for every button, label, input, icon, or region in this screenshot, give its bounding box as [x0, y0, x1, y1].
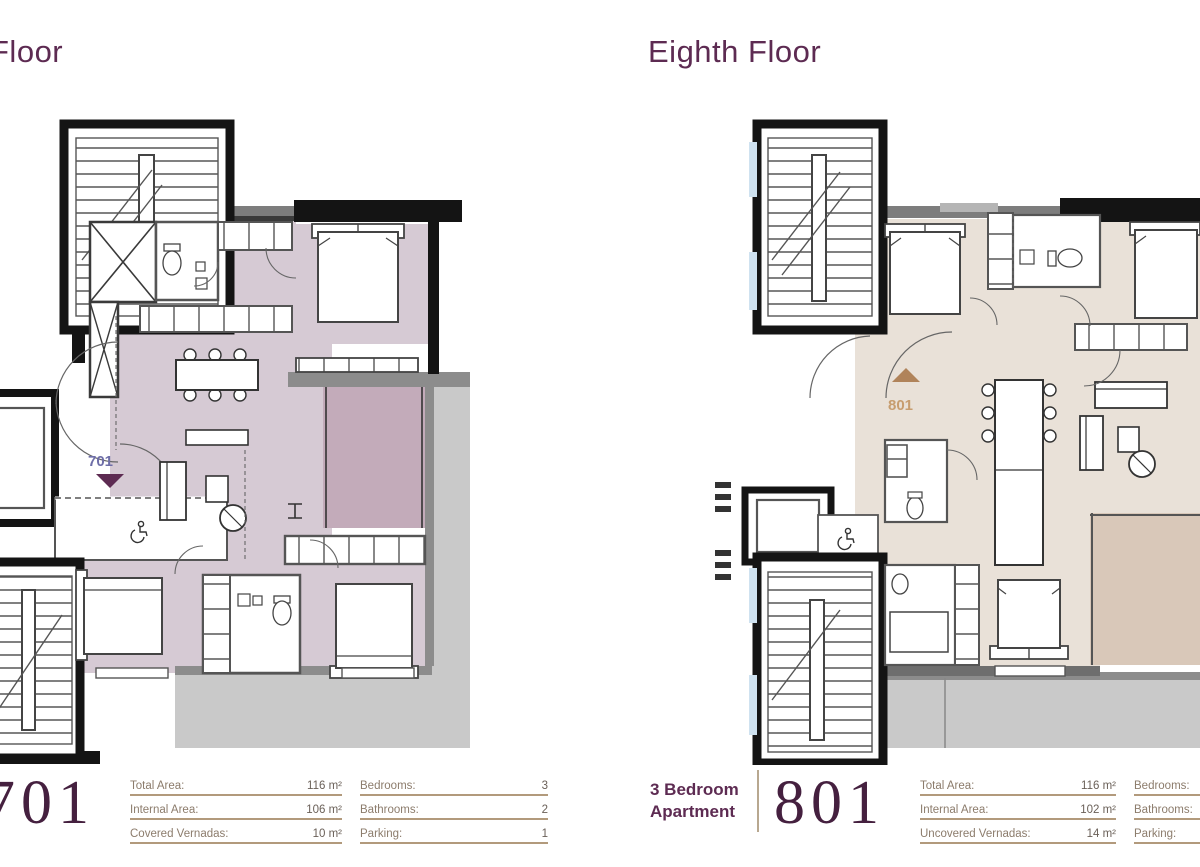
spec-row: Total Area:116 m²: [920, 774, 1116, 796]
spec-label: Bathrooms:: [1134, 804, 1193, 816]
footer-divider: [757, 770, 759, 832]
floor-plan-801-drawing: 801: [640, 110, 1200, 765]
bed-top-right-801: [1130, 222, 1200, 318]
brochure-page: Floor: [0, 0, 1200, 867]
spec-value: 3: [542, 780, 548, 792]
spec-row: Covered Vernadas:10 m²: [130, 822, 342, 844]
unit-marker-701-label: 701: [88, 453, 113, 470]
bed-top-left-801: [885, 224, 965, 314]
bathroom-bottom-801: [885, 565, 979, 665]
spec-label: Internal Area:: [920, 804, 988, 816]
spec-row: Bathrooms:2: [360, 798, 548, 820]
bathroom-bottom-701: [203, 575, 300, 673]
spec-row: Parking:: [1134, 822, 1200, 844]
spec-label: Bathrooms:: [360, 804, 419, 816]
spec-table-801: Total Area:116 m² Internal Area:102 m² U…: [920, 774, 1200, 846]
bathroom-top-701: [156, 222, 218, 300]
spec-row: Internal Area:106 m²: [130, 798, 342, 820]
bathroom-top-801: [988, 213, 1100, 289]
spec-value: 10 m²: [313, 828, 342, 840]
dining-set-701: [176, 349, 258, 401]
floor-plan-701-drawing: 701: [0, 110, 560, 765]
spec-row: Uncovered Vernadas:14 m²: [920, 822, 1116, 844]
spec-row: Internal Area:102 m²: [920, 798, 1116, 820]
spec-value: 106 m²: [306, 804, 342, 816]
stairwell-top-801: [749, 124, 883, 330]
accessible-lobby-701: [55, 498, 227, 560]
apartment-type-line1: 3 Bedroom: [650, 779, 739, 801]
terrace-801: [882, 672, 1200, 748]
spec-label: Parking:: [360, 828, 402, 840]
spec-value: 2: [542, 804, 548, 816]
bed-bottom-right: [330, 584, 418, 678]
spec-label: Covered Vernadas:: [130, 828, 228, 840]
apartment-type-801: 3 Bedroom Apartment: [650, 779, 739, 823]
spec-label: Internal Area:: [130, 804, 198, 816]
spec-label: Total Area:: [920, 780, 974, 792]
bathroom-mid-801: [885, 440, 947, 522]
spec-row: Total Area:116 m²: [130, 774, 342, 796]
spec-row: Parking:1: [360, 822, 548, 844]
spec-col-areas-701: Total Area:116 m² Internal Area:106 m² C…: [130, 774, 342, 846]
unit-marker-801-label: 801: [888, 397, 913, 414]
spec-label: Total Area:: [130, 780, 184, 792]
covered-veranda-701: [323, 387, 425, 528]
stairwell-bottom-701: [0, 562, 80, 758]
spec-value: 1: [542, 828, 548, 840]
spec-value: 116 m²: [1081, 780, 1116, 792]
spec-col-counts-701: Bedrooms:3 Bathrooms:2 Parking:1: [360, 774, 548, 846]
spec-value: 102 m²: [1080, 804, 1116, 816]
stairwell-bottom-801: [749, 557, 883, 763]
spec-value: 116 m²: [307, 780, 342, 792]
accessible-lobby-801: [818, 515, 878, 555]
spec-label: Bedrooms:: [1134, 780, 1190, 792]
spec-table-701: Total Area:116 m² Internal Area:106 m² C…: [130, 774, 548, 846]
spec-label: Bedrooms:: [360, 780, 416, 792]
big-unit-number-701: 701: [0, 768, 95, 839]
spec-row: Bedrooms:: [1134, 774, 1200, 796]
spec-col-areas-801: Total Area:116 m² Internal Area:102 m² U…: [920, 774, 1116, 846]
apartment-type-line2: Apartment: [650, 801, 739, 823]
closet-row-801: [1075, 324, 1187, 350]
spec-value: 14 m²: [1087, 828, 1116, 840]
bed-bottom-left: [76, 570, 162, 660]
right-floor-title: Eighth Floor: [648, 34, 821, 70]
spec-label: Uncovered Vernadas:: [920, 828, 1031, 840]
spec-col-counts-801: Bedrooms: Bathrooms: Parking:: [1134, 774, 1200, 846]
elevator-left-cut: [0, 393, 55, 523]
window-801: [995, 666, 1065, 676]
spec-row: Bathrooms:: [1134, 798, 1200, 820]
left-floor-title: Floor: [0, 34, 63, 70]
big-unit-number-801: 801: [774, 768, 885, 839]
uncovered-veranda-801: [1090, 513, 1200, 665]
bed-top-right: [312, 224, 404, 322]
bed-bottom-801: [990, 580, 1068, 659]
spec-row: Bedrooms:3: [360, 774, 548, 796]
spec-label: Parking:: [1134, 828, 1176, 840]
